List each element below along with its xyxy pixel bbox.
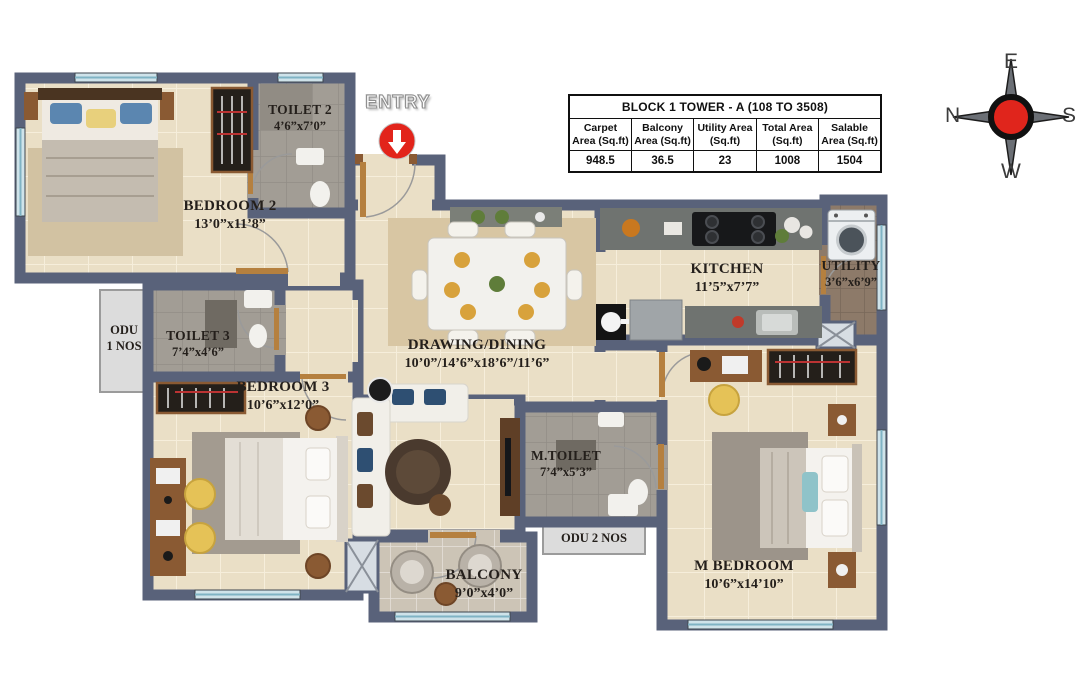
compass-east-label: E bbox=[1004, 50, 1018, 74]
label-bedroom2: BEDROOM 2 13’0”x11’8” bbox=[135, 197, 325, 233]
flowers-icon bbox=[732, 316, 744, 328]
area-info-table: BLOCK 1 TOWER - A (108 TO 3508) Carpet A… bbox=[568, 94, 882, 173]
label-mbedroom: M BEDROOM 10’6”x14’10” bbox=[654, 557, 834, 593]
label-odu1: ODU 1 NOS bbox=[100, 322, 148, 355]
entry-arrow-icon bbox=[379, 123, 415, 159]
pouf-icon bbox=[429, 494, 451, 516]
compass-south-label: S bbox=[1062, 104, 1076, 128]
label-mtoilet: M.TOILET 7’4”x5’3” bbox=[520, 448, 612, 481]
label-odu2: ODU 2 NOS bbox=[543, 530, 645, 546]
fridge-icon bbox=[630, 300, 682, 340]
total-area-value: 1008 bbox=[756, 151, 818, 173]
vegetables-icon bbox=[775, 229, 789, 243]
bed-icon bbox=[225, 436, 348, 542]
compass-north-label: N bbox=[945, 104, 960, 128]
label-balcony: BALCONY 9’0”x4’0” bbox=[414, 566, 554, 602]
label-utility: UTILITY 3’6”x6’9” bbox=[806, 258, 896, 291]
floor-plan-page: ENTRY BEDROOM 2 13’0”x11’8” TOILET 2 4’6… bbox=[0, 0, 1092, 686]
label-kitchen: KITCHEN 11’5”x7’7” bbox=[652, 260, 802, 296]
kitchen-sink-icon bbox=[756, 310, 798, 335]
sink-icon bbox=[598, 412, 624, 427]
round-rug-inner bbox=[396, 450, 440, 494]
nightstand-icon bbox=[306, 554, 330, 578]
col-header-carpet: Carpet Area (Sq.ft) bbox=[569, 119, 631, 151]
desk-icon bbox=[690, 350, 762, 382]
col-header-utility: Utility Area (Sq.ft) bbox=[694, 119, 756, 151]
dining-furniture bbox=[388, 207, 596, 346]
sink-icon bbox=[296, 148, 324, 165]
appliance-icon bbox=[596, 304, 629, 340]
counter-icon bbox=[685, 306, 822, 338]
chair-icon bbox=[185, 479, 215, 509]
col-header-total: Total Area (Sq.ft) bbox=[756, 119, 818, 151]
utility-area-value: 23 bbox=[694, 151, 756, 173]
desk-icon bbox=[150, 458, 186, 576]
cutting-board-icon bbox=[664, 222, 682, 235]
chair-icon bbox=[185, 523, 215, 553]
fruit-bowl-icon bbox=[622, 219, 640, 237]
carpet-area-value: 948.5 bbox=[569, 151, 631, 173]
label-toilet2: TOILET 2 4’6”x7’0” bbox=[252, 102, 348, 135]
entry-label: ENTRY bbox=[358, 92, 438, 113]
corridor-mbedroom bbox=[600, 345, 662, 407]
wardrobe-icon bbox=[212, 88, 252, 172]
sink-icon bbox=[244, 290, 272, 308]
balcony-area-value: 36.5 bbox=[631, 151, 693, 173]
chair-icon bbox=[709, 385, 739, 415]
label-drawing-dining: DRAWING/DINING 10’0”/14’6”x18’6”/11’6” bbox=[367, 336, 587, 372]
col-header-balcony: Balcony Area (Sq.ft) bbox=[631, 119, 693, 151]
col-header-salable: Salable Area (Sq.ft) bbox=[819, 119, 881, 151]
salable-area-value: 1504 bbox=[819, 151, 881, 173]
washing-machine-icon bbox=[828, 210, 875, 260]
wardrobe-icon bbox=[768, 350, 856, 384]
compass-west-label: W bbox=[1001, 160, 1021, 184]
label-toilet3: TOILET 3 7’4”x4’6” bbox=[150, 328, 246, 361]
label-bedroom3: BEDROOM 3 10’6”x12’0” bbox=[193, 378, 373, 414]
stove-icon bbox=[692, 212, 776, 246]
dining-table-icon bbox=[412, 222, 582, 345]
wc-icon bbox=[249, 324, 267, 348]
compass-rose-icon bbox=[953, 59, 1069, 175]
tv-unit-icon bbox=[500, 418, 520, 516]
table-title: BLOCK 1 TOWER - A (108 TO 3508) bbox=[569, 95, 881, 119]
plate-icon bbox=[800, 226, 813, 239]
bed-icon bbox=[760, 444, 862, 552]
shower-tray-icon bbox=[608, 494, 638, 516]
